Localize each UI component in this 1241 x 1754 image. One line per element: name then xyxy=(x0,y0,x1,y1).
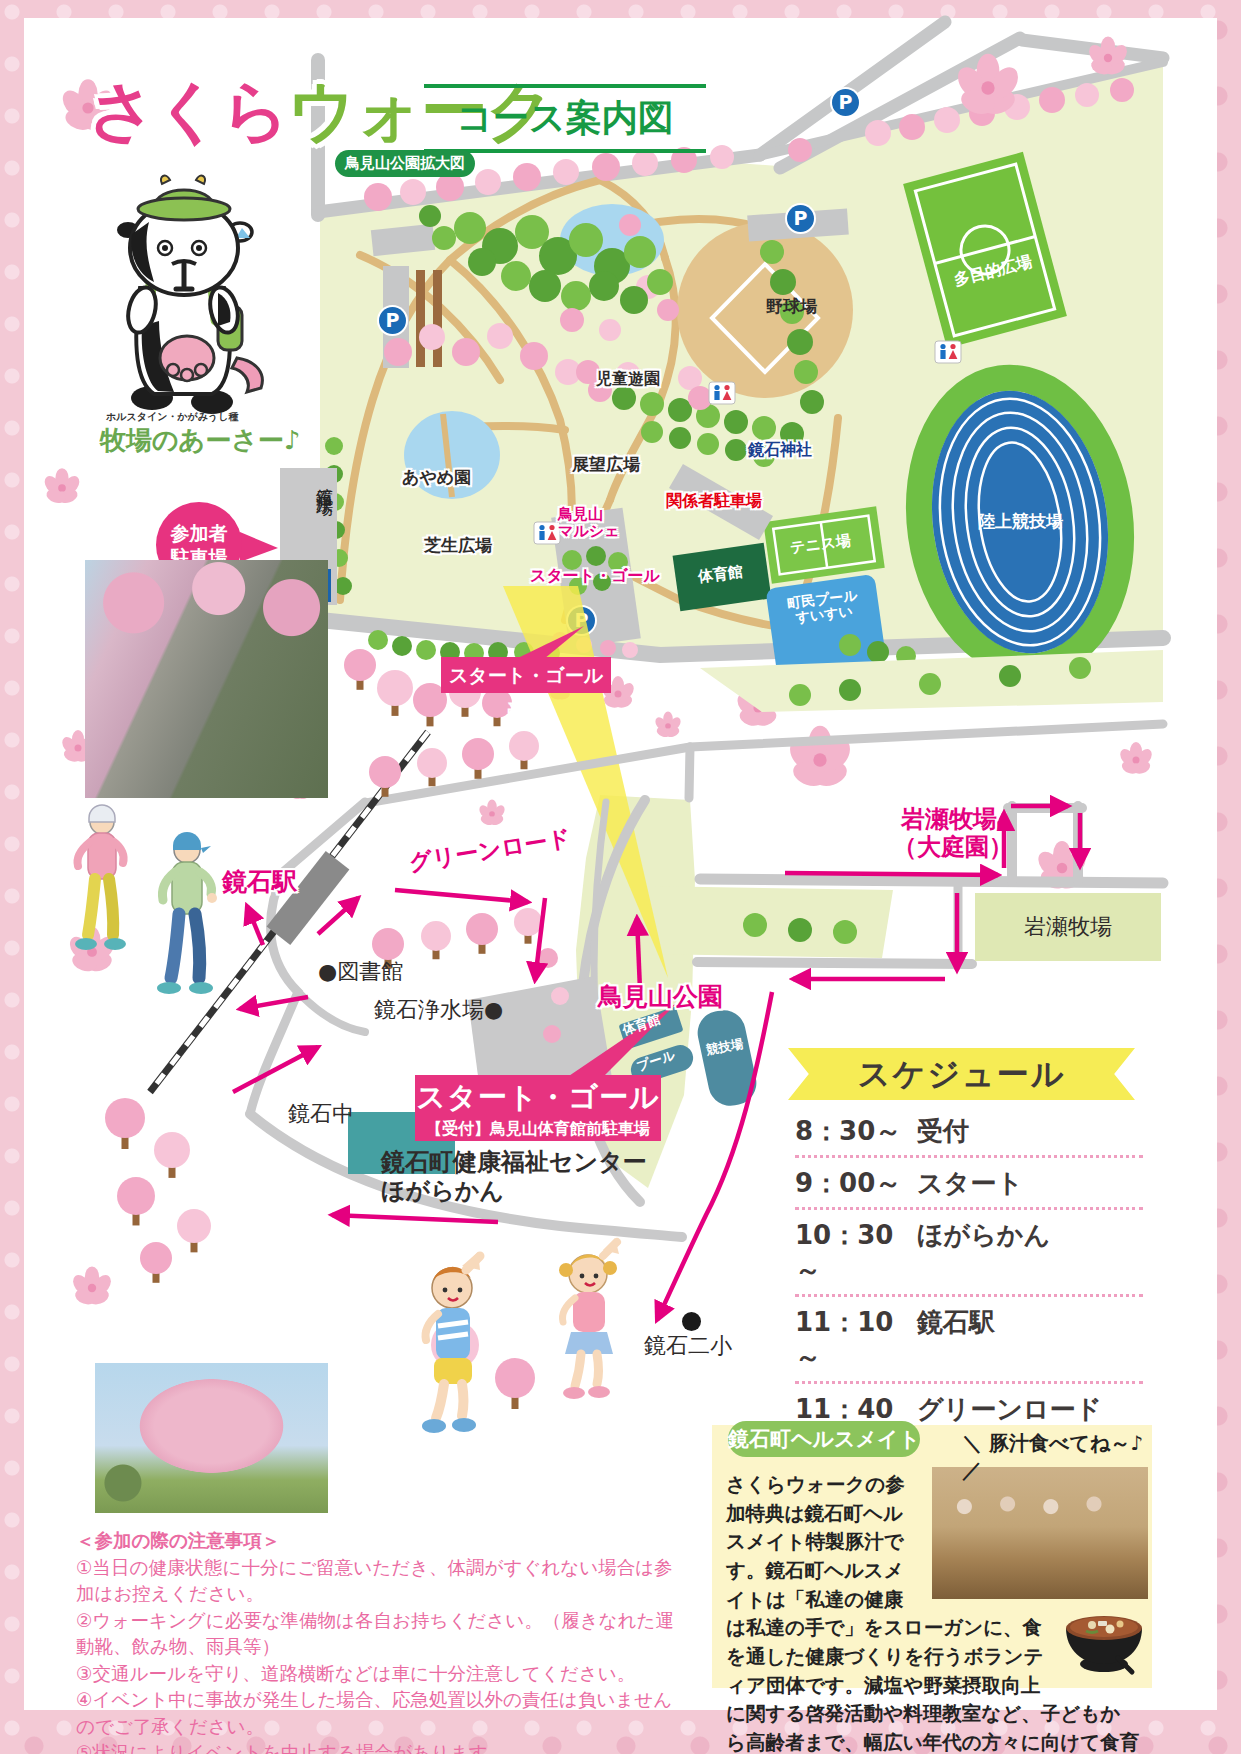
photo-weeping-cherry xyxy=(95,1363,328,1513)
note-item: ①当日の健康状態に十分にご留意いただき、体調がすぐれない場合は参加はお控えくださ… xyxy=(76,1555,676,1608)
schedule-label: ほがらかん xyxy=(917,1218,1050,1253)
label-hogarakan-center: 鏡石町健康福祉センター ほがらかん xyxy=(381,1148,647,1206)
course-guide-label: コース案内図 xyxy=(424,84,706,153)
parking-icon: P xyxy=(568,607,595,634)
notes-title: ＜参加の際の注意事項＞ xyxy=(76,1528,676,1555)
label-library: ●図書館 xyxy=(318,960,403,984)
mascot-breed-caption: ホルスタイン・かがみうし種 xyxy=(106,410,239,424)
toilet-icon xyxy=(534,522,560,544)
bubble-line1: 参加者 xyxy=(156,522,242,546)
label-station: 鏡石駅 xyxy=(222,868,297,896)
schedule-time: 10：30～ xyxy=(795,1218,917,1288)
mascot-cow-illustration xyxy=(92,158,272,418)
label-iwase-line1: 岩瀬牧場 xyxy=(901,806,997,832)
label-center-line2: ほがらかん xyxy=(381,1177,647,1206)
label-junior-high: 鏡石中 xyxy=(288,1102,354,1126)
label-rikujo: 陸上競技場 xyxy=(978,512,1063,531)
healthmate-box: 鏡石町ヘルスメイト ＼ 豚汁食べてね～♪／ さくらウォークの参加特典は鏡石町ヘル… xyxy=(712,1425,1152,1688)
parking-icon: P xyxy=(832,89,859,116)
start-goal-reception-box: スタート・ゴール受付 xyxy=(441,657,611,693)
parking-stripe xyxy=(416,270,425,367)
participation-notes: ＜参加の際の注意事項＞ ①当日の健康状態に十分にご留意いただき、体調がすぐれない… xyxy=(76,1528,676,1754)
parking-stripe xyxy=(433,270,442,367)
label-elementary: 鏡石二小 xyxy=(644,1334,732,1358)
note-item: ⑤状況によりイベントを中止する場合があります。 xyxy=(76,1740,676,1754)
parking-icon: P xyxy=(787,205,814,232)
water-plant-vertical-label: 鏡石浄水場 xyxy=(280,474,337,489)
label-toriyama-park: 鳥見山公園 xyxy=(598,983,723,1011)
healthmate-callout: ＼ 豚汁食べてね～♪／ xyxy=(962,1430,1152,1484)
toilet-icon xyxy=(935,341,961,363)
label-marche-line1: 鳥見山 xyxy=(558,506,619,523)
schedule-row: 9：00～ スタート xyxy=(795,1158,1143,1210)
schedule-banner: スケジュール xyxy=(788,1048,1135,1100)
schedule-time: 11：10～ xyxy=(795,1305,917,1375)
start-goal-box-line2: 【受付】鳥見山体育館前駐車場 xyxy=(415,1119,661,1140)
label-marche: 鳥見山 マルシェ xyxy=(558,506,619,539)
toilet-icon xyxy=(709,382,735,404)
schedule-label: スタート xyxy=(917,1166,1023,1201)
schedule-row: 8：30～ 受付 xyxy=(795,1106,1143,1158)
label-ayame: あやめ園 xyxy=(402,468,471,487)
label-center-line1: 鏡石町健康福祉センター xyxy=(381,1148,647,1177)
photo-sakura-road xyxy=(85,560,328,798)
illustration-girl xyxy=(533,1236,648,1404)
healthmate-photo-float xyxy=(932,1467,1148,1599)
illustration-jogging-man xyxy=(145,828,230,1018)
label-marche-line2: マルシェ xyxy=(558,523,619,540)
schedule-label: グリーンロード xyxy=(917,1392,1102,1427)
label-yakyujo: 野球場 xyxy=(766,297,817,316)
elementary-dot xyxy=(682,1312,701,1331)
label-kankeisha: 関係者駐車場 xyxy=(666,492,762,510)
note-item: ③交通ルールを守り、道路横断などは車に十分注意してください。 xyxy=(76,1661,676,1688)
label-jinja: 鏡石神社 xyxy=(748,441,812,459)
label-tenbo: 展望広場 xyxy=(572,455,640,474)
title-sakura: さくら xyxy=(88,72,288,150)
label-jido-yuen: 児童遊園 xyxy=(596,370,660,388)
note-item: ②ウォーキングに必要な準備物は各自お持ちください。（履きなれた運動靴、飲み物、雨… xyxy=(76,1608,676,1661)
note-item: ④イベント中に事故が発生した場合、応急処置以外の責任は負いませんのでご了承くださ… xyxy=(76,1687,676,1740)
label-iwase-box: 岩瀬牧場 xyxy=(975,915,1161,939)
schedule-row: 10：30～ ほがらかん xyxy=(795,1210,1143,1297)
park-zoom-badge: 鳥見山公園拡大図 xyxy=(335,150,475,177)
mascot-name-caption: 牧場のあーさー♪ xyxy=(100,423,300,458)
schedule-label: 受付 xyxy=(917,1114,969,1149)
start-goal-box: スタート・ゴール 【受付】鳥見山体育館前駐車場 xyxy=(415,1075,661,1141)
label-iwase-line2: （大庭園） xyxy=(893,834,1013,860)
schedule-label: 鏡石駅 xyxy=(917,1305,995,1340)
tonjiru-bowl-icon xyxy=(1058,1598,1150,1682)
schedule-time: 9：00～ xyxy=(795,1166,917,1201)
schedule-time: 8：30～ xyxy=(795,1114,917,1149)
label-start-goal-park: スタート・ゴール xyxy=(530,567,660,585)
label-shibafu: 芝生広場 xyxy=(424,536,492,555)
illustration-jogging-woman xyxy=(62,800,157,960)
healthmate-badge: 鏡石町ヘルスメイト xyxy=(728,1421,920,1457)
illustration-boy xyxy=(400,1248,510,1436)
poster-page: P P P P 児童遊園 野球場 多目的広場 鏡石神社 あやめ園 展望広場 関係… xyxy=(0,0,1241,1754)
label-water-plant: 鏡石浄水場● xyxy=(374,998,503,1022)
start-goal-box-line1: スタート・ゴール xyxy=(415,1078,661,1118)
parking-icon: P xyxy=(379,307,406,334)
photo-volunteers xyxy=(932,1467,1148,1599)
schedule-row: 11：10～ 鏡石駅 xyxy=(795,1297,1143,1384)
